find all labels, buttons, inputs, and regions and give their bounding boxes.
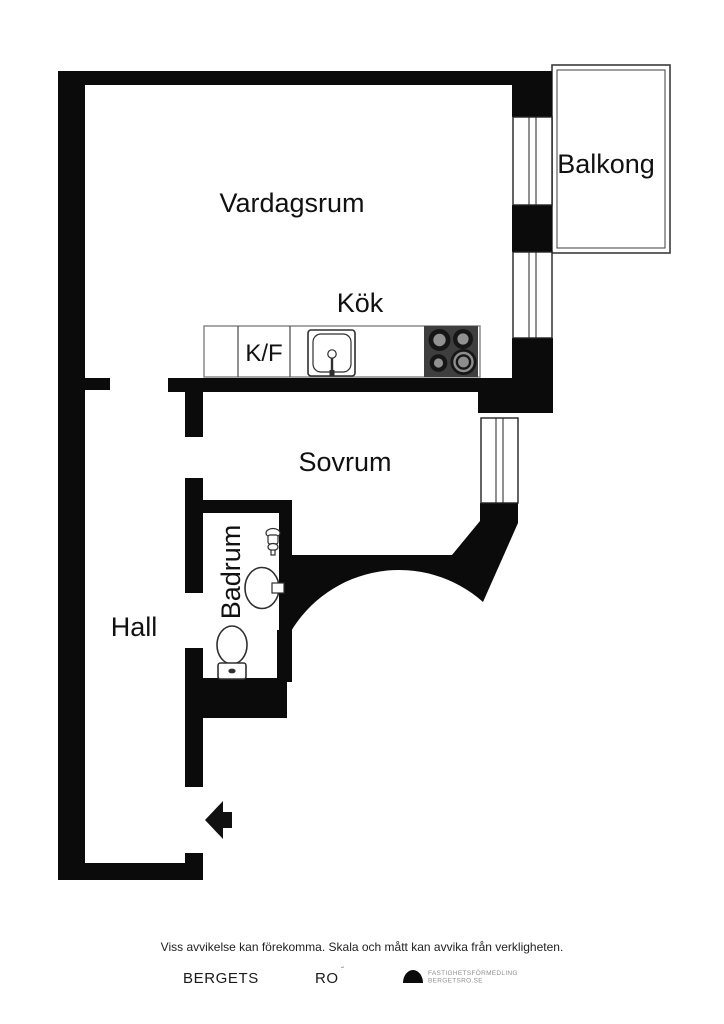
tap-spout [271,550,275,555]
entrance-arrow-icon [205,801,232,839]
footer: Viss avvikelse kan förekomma. Skala och … [161,940,564,987]
sink-faucet-base [330,370,335,376]
wall-top [58,71,547,85]
tap-icon [266,529,280,556]
window-sovrum [481,418,518,503]
room-label-balkong: Balkong [557,149,655,179]
disclaimer-text: Viss avvikelse kan förekomma. Skala och … [161,940,564,954]
wall-kitchen-stub [85,378,110,390]
wall-left [58,71,85,880]
toilet-bowl [217,626,247,664]
toilet-button [228,669,235,674]
wall-right-between-windows [512,205,552,252]
wall-badrum-right-lower [277,630,292,682]
wall-top-right-corner [512,71,552,117]
toilet-icon [217,626,247,679]
wall-hall-sovrum-stub [185,388,203,437]
wall-right-kitchen [512,338,553,413]
brand-word-ro: RO [315,970,339,987]
washbasin-tap [272,583,284,593]
burner-center [434,358,443,367]
washbasin-icon [245,568,284,609]
burner-center [433,334,445,346]
logo-text-line1: FASTIGHETSFÖRMEDLING [428,969,518,977]
window-frame [513,252,552,338]
burner-center [457,333,468,344]
wall-kitchen-bottom [168,378,482,392]
wall-kitchen-step [478,378,512,413]
window-balcony-door [513,117,552,205]
sink-faucet-head [328,350,336,358]
floorplan: Vardagsrum Kök Balkong Sovrum Badrum Hal… [0,0,724,1024]
room-label-vardagsrum: Vardagsrum [219,188,364,218]
label-fridge-freezer: K/F [245,340,282,367]
brokerage-logo-icon [403,970,423,983]
room-label-sovrum: Sovrum [298,447,391,477]
logo-text-line2: BERGETSRO.SE [428,978,483,985]
wall-hall-badrum-upper [185,478,203,593]
brand-word-bergets: BERGETS [183,970,259,987]
room-label-badrum: Badrum [216,525,246,620]
tap-body [268,535,278,544]
wall-arched-corner [290,503,518,633]
room-label-hall: Hall [111,612,158,642]
burner-center [458,357,469,368]
window-frame [513,117,552,205]
wall-bottom [58,863,203,880]
brand-mark: ˝ [341,966,345,975]
wall-badrum-top [198,500,292,513]
wall-badrum-bottom [185,678,287,718]
room-label-kok: Kök [337,288,384,318]
windows [481,117,552,503]
window-frame [481,418,518,503]
stove-icon [424,326,478,377]
sink-icon [308,330,355,376]
window-vardagsrum [513,252,552,338]
